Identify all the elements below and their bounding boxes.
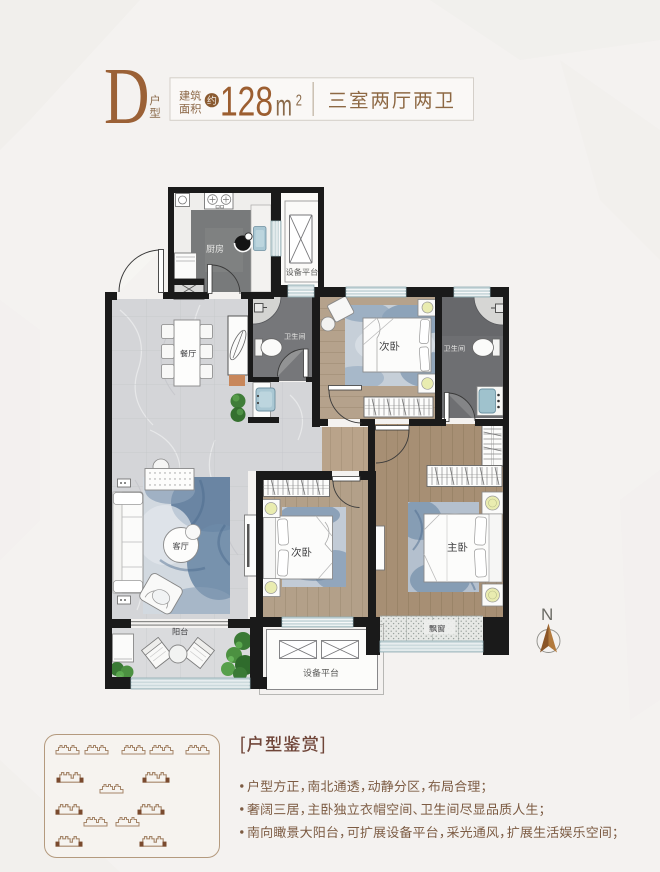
svg-text:128: 128 [220,78,273,125]
svg-text:D: D [104,53,150,141]
svg-text:N: N [541,605,553,624]
svg-text:m: m [276,90,293,123]
svg-text:2: 2 [296,93,302,110]
